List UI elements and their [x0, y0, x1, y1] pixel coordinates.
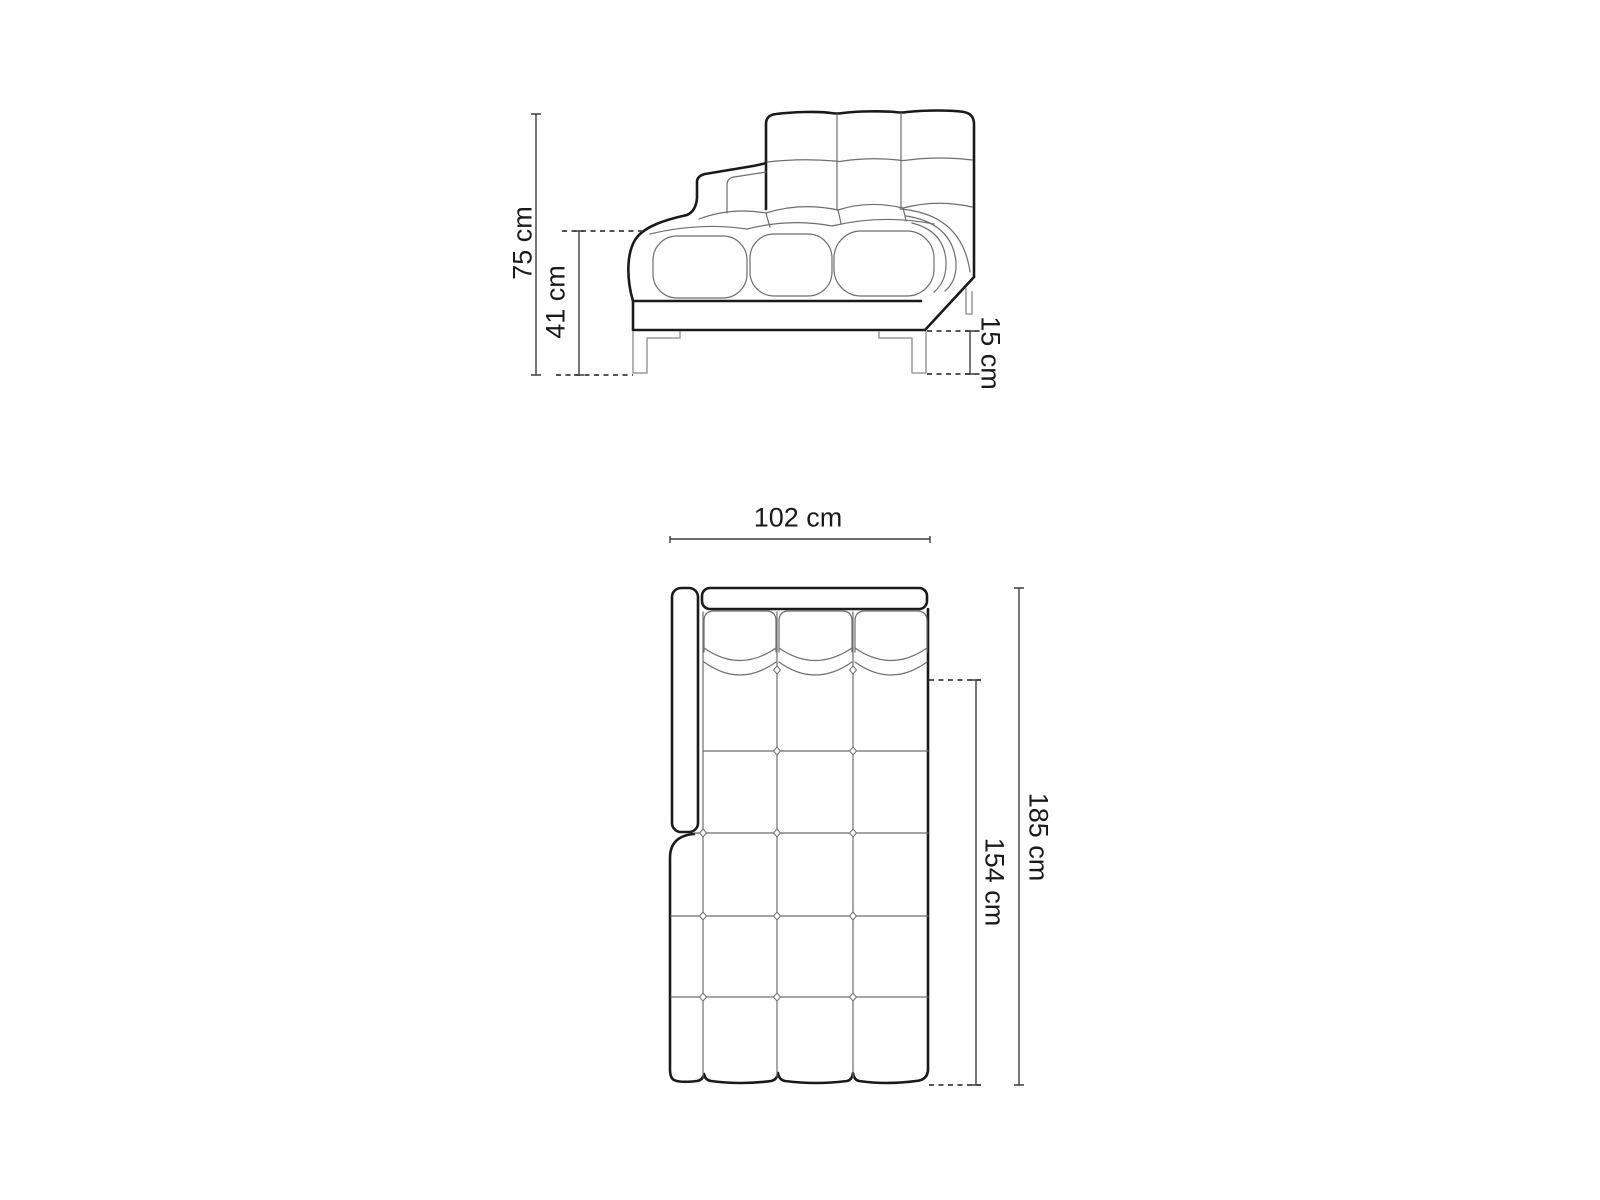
- seat-tuft-line: [650, 219, 934, 234]
- seat-cushion: [834, 231, 934, 296]
- side-total-height-label: 75 cm: [510, 206, 537, 280]
- leg-height-dimension: [927, 331, 981, 374]
- headrest-cushion: [704, 611, 776, 675]
- seat-cushion: [750, 234, 832, 296]
- seat-tuft-dips: [766, 208, 906, 227]
- backrest-tuft-line: [767, 158, 972, 162]
- base-frame-outline: [633, 277, 974, 330]
- front-right-leg: [879, 331, 926, 373]
- plan-total-depth-label: 185 cm: [1025, 793, 1052, 882]
- seat-cushion: [653, 236, 747, 298]
- backrest-outline: [766, 111, 974, 278]
- armrest-inner-line: [727, 172, 766, 213]
- cushion-end-arc: [900, 209, 970, 272]
- plan-backrest-rail: [702, 588, 927, 609]
- side-leg-height-label: 15 cm: [977, 316, 1004, 390]
- rear-right-leg: [966, 288, 972, 314]
- plan-view-drawing: [670, 536, 1024, 1085]
- seat-depth-dimension: [929, 680, 981, 1085]
- total-depth-dimension: [1014, 588, 1024, 1085]
- headrest-cushion: [855, 611, 927, 675]
- width-dimension: [670, 536, 930, 543]
- plan-seat-depth-label: 154 cm: [981, 838, 1008, 927]
- side-view-drawing: [531, 111, 981, 376]
- dimension-drawing-canvas: 75 cm 41 cm 15 cm 102 cm 185 cm 154 cm: [0, 0, 1600, 1200]
- sofa-line-art: [0, 0, 1600, 1200]
- plan-seat-outline: [670, 834, 928, 1083]
- side-seat-height-label: 41 cm: [543, 265, 570, 339]
- headrest-cushion: [779, 611, 852, 675]
- armrest-and-end-outline: [628, 163, 766, 301]
- plan-width-label: 102 cm: [754, 505, 843, 532]
- plan-armrest: [672, 588, 698, 832]
- front-left-leg: [633, 331, 680, 373]
